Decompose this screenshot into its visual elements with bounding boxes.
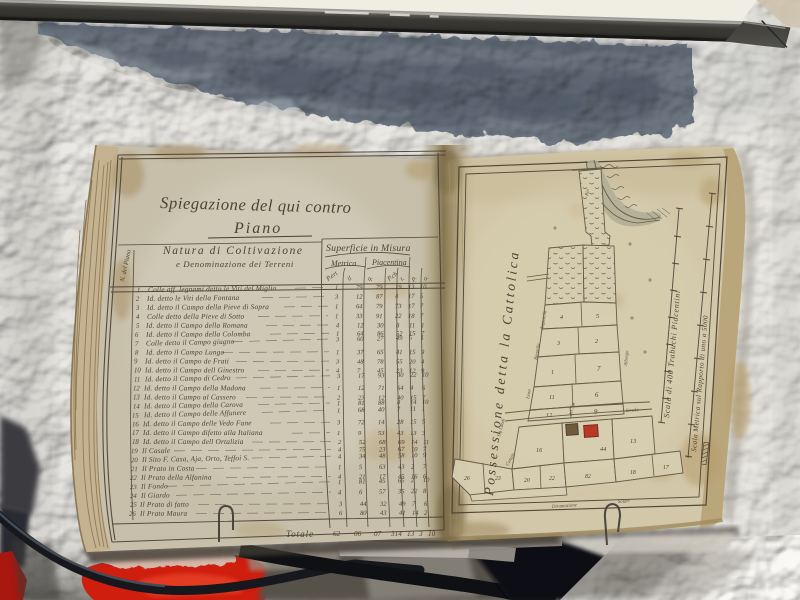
svg-text:Il Sito F. Casa, Aja, Orto, Te: Il Sito F. Casa, Aja, Orto, Teffoi S. [141, 453, 250, 464]
svg-text:72: 72 [358, 419, 365, 426]
svg-text:1: 1 [551, 369, 554, 376]
svg-text:27: 27 [377, 335, 384, 342]
svg-text:e Denominazione dei Terreni: e Denominazione dei Terreni [176, 259, 294, 269]
svg-text:30: 30 [396, 372, 404, 379]
svg-text:1: 1 [337, 407, 340, 414]
svg-text:63: 63 [379, 464, 386, 471]
svg-text:2: 2 [595, 338, 598, 345]
svg-text:3: 3 [421, 430, 426, 437]
svg-text:73: 73 [395, 303, 402, 310]
svg-text:14: 14 [378, 419, 385, 426]
svg-text:Piacentina: Piacentina [371, 258, 407, 267]
svg-text:25: 25 [130, 502, 137, 509]
svg-text:79: 79 [376, 284, 383, 291]
svg-text:13: 13 [407, 530, 415, 538]
svg-text:69: 69 [398, 439, 405, 446]
svg-text:14: 14 [412, 510, 419, 517]
svg-text:17: 17 [358, 373, 365, 380]
svg-text:33: 33 [355, 313, 363, 320]
svg-text:34: 34 [358, 453, 366, 460]
svg-text:43: 43 [398, 464, 405, 471]
svg-text:19: 19 [395, 284, 402, 291]
svg-text:30: 30 [376, 322, 384, 329]
svg-text:19: 19 [131, 448, 138, 455]
svg-text:91: 91 [376, 313, 383, 320]
svg-text:11: 11 [423, 439, 429, 446]
svg-text:22: 22 [130, 475, 137, 482]
svg-text:1: 1 [337, 385, 340, 392]
svg-text:11: 11 [410, 406, 416, 413]
svg-text:14: 14 [133, 403, 141, 410]
svg-text:68: 68 [358, 407, 365, 414]
svg-text:43: 43 [380, 510, 387, 517]
svg-text:Il Giardo: Il Giardo [140, 490, 170, 500]
svg-text:314: 314 [390, 530, 402, 538]
svg-text:3: 3 [335, 359, 340, 366]
svg-text:Id. detto il Campo Lungo: Id. detto il Campo Lungo [145, 347, 225, 356]
svg-text:10: 10 [422, 372, 429, 379]
svg-text:1: 1 [335, 304, 338, 311]
svg-text:Superficie in Misura: Superficie in Misura [326, 243, 411, 254]
svg-text:11: 11 [134, 377, 140, 384]
svg-text:48: 48 [379, 453, 386, 460]
svg-text:18: 18 [630, 470, 636, 476]
svg-text:Il Prato della Alfanina: Il Prato della Alfanina [140, 473, 212, 482]
svg-text:64: 64 [356, 303, 363, 310]
svg-text:1: 1 [421, 322, 424, 329]
svg-text:22: 22 [549, 476, 555, 482]
svg-text:52: 52 [359, 439, 366, 446]
svg-text:80: 80 [360, 510, 367, 517]
svg-text:10: 10 [420, 284, 427, 291]
svg-text:6: 6 [595, 392, 599, 399]
svg-text:17: 17 [408, 303, 415, 310]
svg-text:Colle detto della Pieve di Sot: Colle detto della Pieve di Sotto [147, 312, 245, 321]
svg-text:79: 79 [356, 284, 363, 291]
svg-text:26: 26 [129, 511, 136, 518]
svg-text:82: 82 [585, 474, 591, 480]
svg-text:65: 65 [398, 477, 405, 484]
svg-text:53: 53 [378, 430, 385, 437]
svg-text:12: 12 [546, 412, 552, 419]
svg-text:22: 22 [411, 488, 418, 495]
svg-text:7: 7 [597, 366, 601, 373]
svg-text:32: 32 [379, 501, 387, 508]
svg-text:Id. detto il Campo di Cedro: Id. detto il Campo di Cedro [144, 373, 231, 384]
svg-text:40: 40 [378, 406, 385, 413]
svg-text:10: 10 [423, 477, 430, 484]
svg-text:1: 1 [338, 479, 341, 486]
svg-text:15: 15 [132, 412, 140, 419]
svg-text:81: 81 [359, 478, 366, 485]
svg-text:3: 3 [338, 501, 343, 508]
svg-text:18: 18 [408, 313, 415, 320]
svg-text:5: 5 [596, 313, 599, 320]
svg-text:Natura di Coltivazione: Natura di Coltivazione [162, 245, 304, 257]
svg-text:Id. detto il Campo dell Ortali: Id. detto il Campo dell Ortalizia [142, 437, 244, 446]
svg-text:10: 10 [428, 530, 436, 538]
svg-text:20: 20 [131, 457, 139, 464]
svg-text:1: 1 [421, 334, 424, 341]
svg-text:1: 1 [337, 430, 340, 437]
svg-text:41: 41 [396, 349, 403, 356]
svg-text:07: 07 [374, 530, 382, 538]
svg-text:16: 16 [536, 447, 543, 454]
svg-text:3: 3 [135, 305, 140, 312]
svg-text:1: 1 [335, 313, 338, 320]
svg-text:35: 35 [397, 488, 405, 495]
svg-text:Il Prato di fatto: Il Prato di fatto [139, 500, 189, 509]
svg-text:12: 12 [133, 385, 140, 392]
svg-text:22: 22 [410, 372, 417, 379]
svg-text:49: 49 [396, 335, 403, 342]
svg-text:21: 21 [131, 466, 138, 473]
svg-text:3: 3 [336, 419, 341, 426]
svg-text:12: 12 [357, 322, 364, 329]
svg-text:23: 23 [130, 484, 138, 491]
svg-text:65: 65 [377, 349, 384, 356]
svg-text:60: 60 [357, 336, 364, 343]
svg-text:37: 37 [356, 349, 364, 356]
svg-text:93: 93 [378, 372, 385, 379]
svg-text:Id. detto il Campo de Frati: Id. detto il Campo de Frati [144, 357, 229, 366]
svg-text:13: 13 [408, 284, 415, 291]
svg-text:18: 18 [132, 439, 139, 446]
svg-text:20: 20 [524, 478, 530, 484]
svg-text:45: 45 [379, 478, 386, 485]
svg-text:16: 16 [132, 421, 139, 428]
svg-text:64: 64 [397, 385, 404, 392]
svg-text:13: 13 [630, 438, 636, 445]
svg-text:11: 11 [409, 322, 415, 329]
svg-text:49: 49 [399, 501, 406, 508]
svg-text:71: 71 [378, 385, 385, 392]
svg-text:Id. detto il Campo delle Vedo: Id. detto il Campo delle Vedo Fane [142, 418, 252, 428]
svg-text:Il Prato in Costa: Il Prato in Costa [141, 464, 195, 473]
svg-text:48: 48 [357, 359, 364, 366]
svg-text:10: 10 [134, 368, 141, 375]
svg-text:4: 4 [560, 314, 563, 321]
svg-text:68: 68 [379, 439, 386, 446]
svg-text:78: 78 [377, 359, 384, 366]
svg-text:17: 17 [132, 430, 139, 437]
svg-text:44: 44 [360, 501, 367, 508]
svg-text:24: 24 [130, 493, 138, 500]
svg-text:13: 13 [410, 430, 417, 437]
svg-text:Piano: Piano [233, 220, 282, 237]
svg-text:Totale: Totale [286, 529, 314, 539]
svg-text:06: 06 [354, 530, 362, 538]
svg-text:41: 41 [399, 510, 406, 517]
svg-text:3: 3 [556, 340, 560, 347]
svg-text:87: 87 [376, 293, 383, 300]
svg-text:28: 28 [397, 419, 404, 426]
svg-text:1: 1 [137, 287, 140, 294]
svg-text:Solari: Solari [618, 499, 631, 505]
svg-text:57: 57 [379, 489, 386, 496]
svg-text:1: 1 [335, 285, 338, 292]
svg-text:44: 44 [600, 446, 606, 453]
svg-text:15: 15 [410, 419, 417, 426]
svg-text:62: 62 [333, 530, 341, 538]
svg-text:12: 12 [356, 294, 363, 301]
svg-text:9: 9 [134, 359, 138, 366]
svg-text:Id. detto il Campo difetto all: Id. detto il Campo difetto alla Italiana [142, 428, 263, 437]
svg-text:17: 17 [408, 293, 415, 300]
svg-text:12: 12 [358, 385, 365, 392]
svg-text:55: 55 [396, 359, 403, 366]
svg-text:Il Fondo: Il Fondo [140, 481, 168, 491]
svg-text:Il Prato Maura: Il Prato Maura [139, 509, 188, 518]
svg-text:15: 15 [409, 349, 416, 356]
svg-text:13: 13 [133, 394, 140, 401]
svg-text:Metrica: Metrica [330, 259, 356, 268]
svg-text:3: 3 [418, 530, 423, 538]
svg-text:14: 14 [411, 439, 418, 446]
svg-text:79: 79 [376, 303, 383, 310]
svg-text:1: 1 [337, 400, 340, 407]
svg-text:11: 11 [549, 394, 555, 401]
svg-text:22: 22 [395, 313, 402, 320]
svg-text:26: 26 [464, 476, 470, 482]
svg-text:1: 1 [336, 349, 339, 356]
svg-text:Id. detto il Campo della Madon: Id. detto il Campo della Madona [143, 383, 246, 392]
svg-text:10: 10 [411, 452, 418, 459]
svg-text:Id. detto il Campo della Pieve: Id. detto il Campo della Pieve di Sopra [146, 302, 269, 312]
svg-text:20: 20 [409, 359, 416, 366]
svg-text:1: 1 [338, 464, 341, 471]
svg-text:43: 43 [397, 430, 404, 437]
svg-text:1: 1 [422, 405, 425, 412]
svg-text:58: 58 [398, 452, 405, 459]
